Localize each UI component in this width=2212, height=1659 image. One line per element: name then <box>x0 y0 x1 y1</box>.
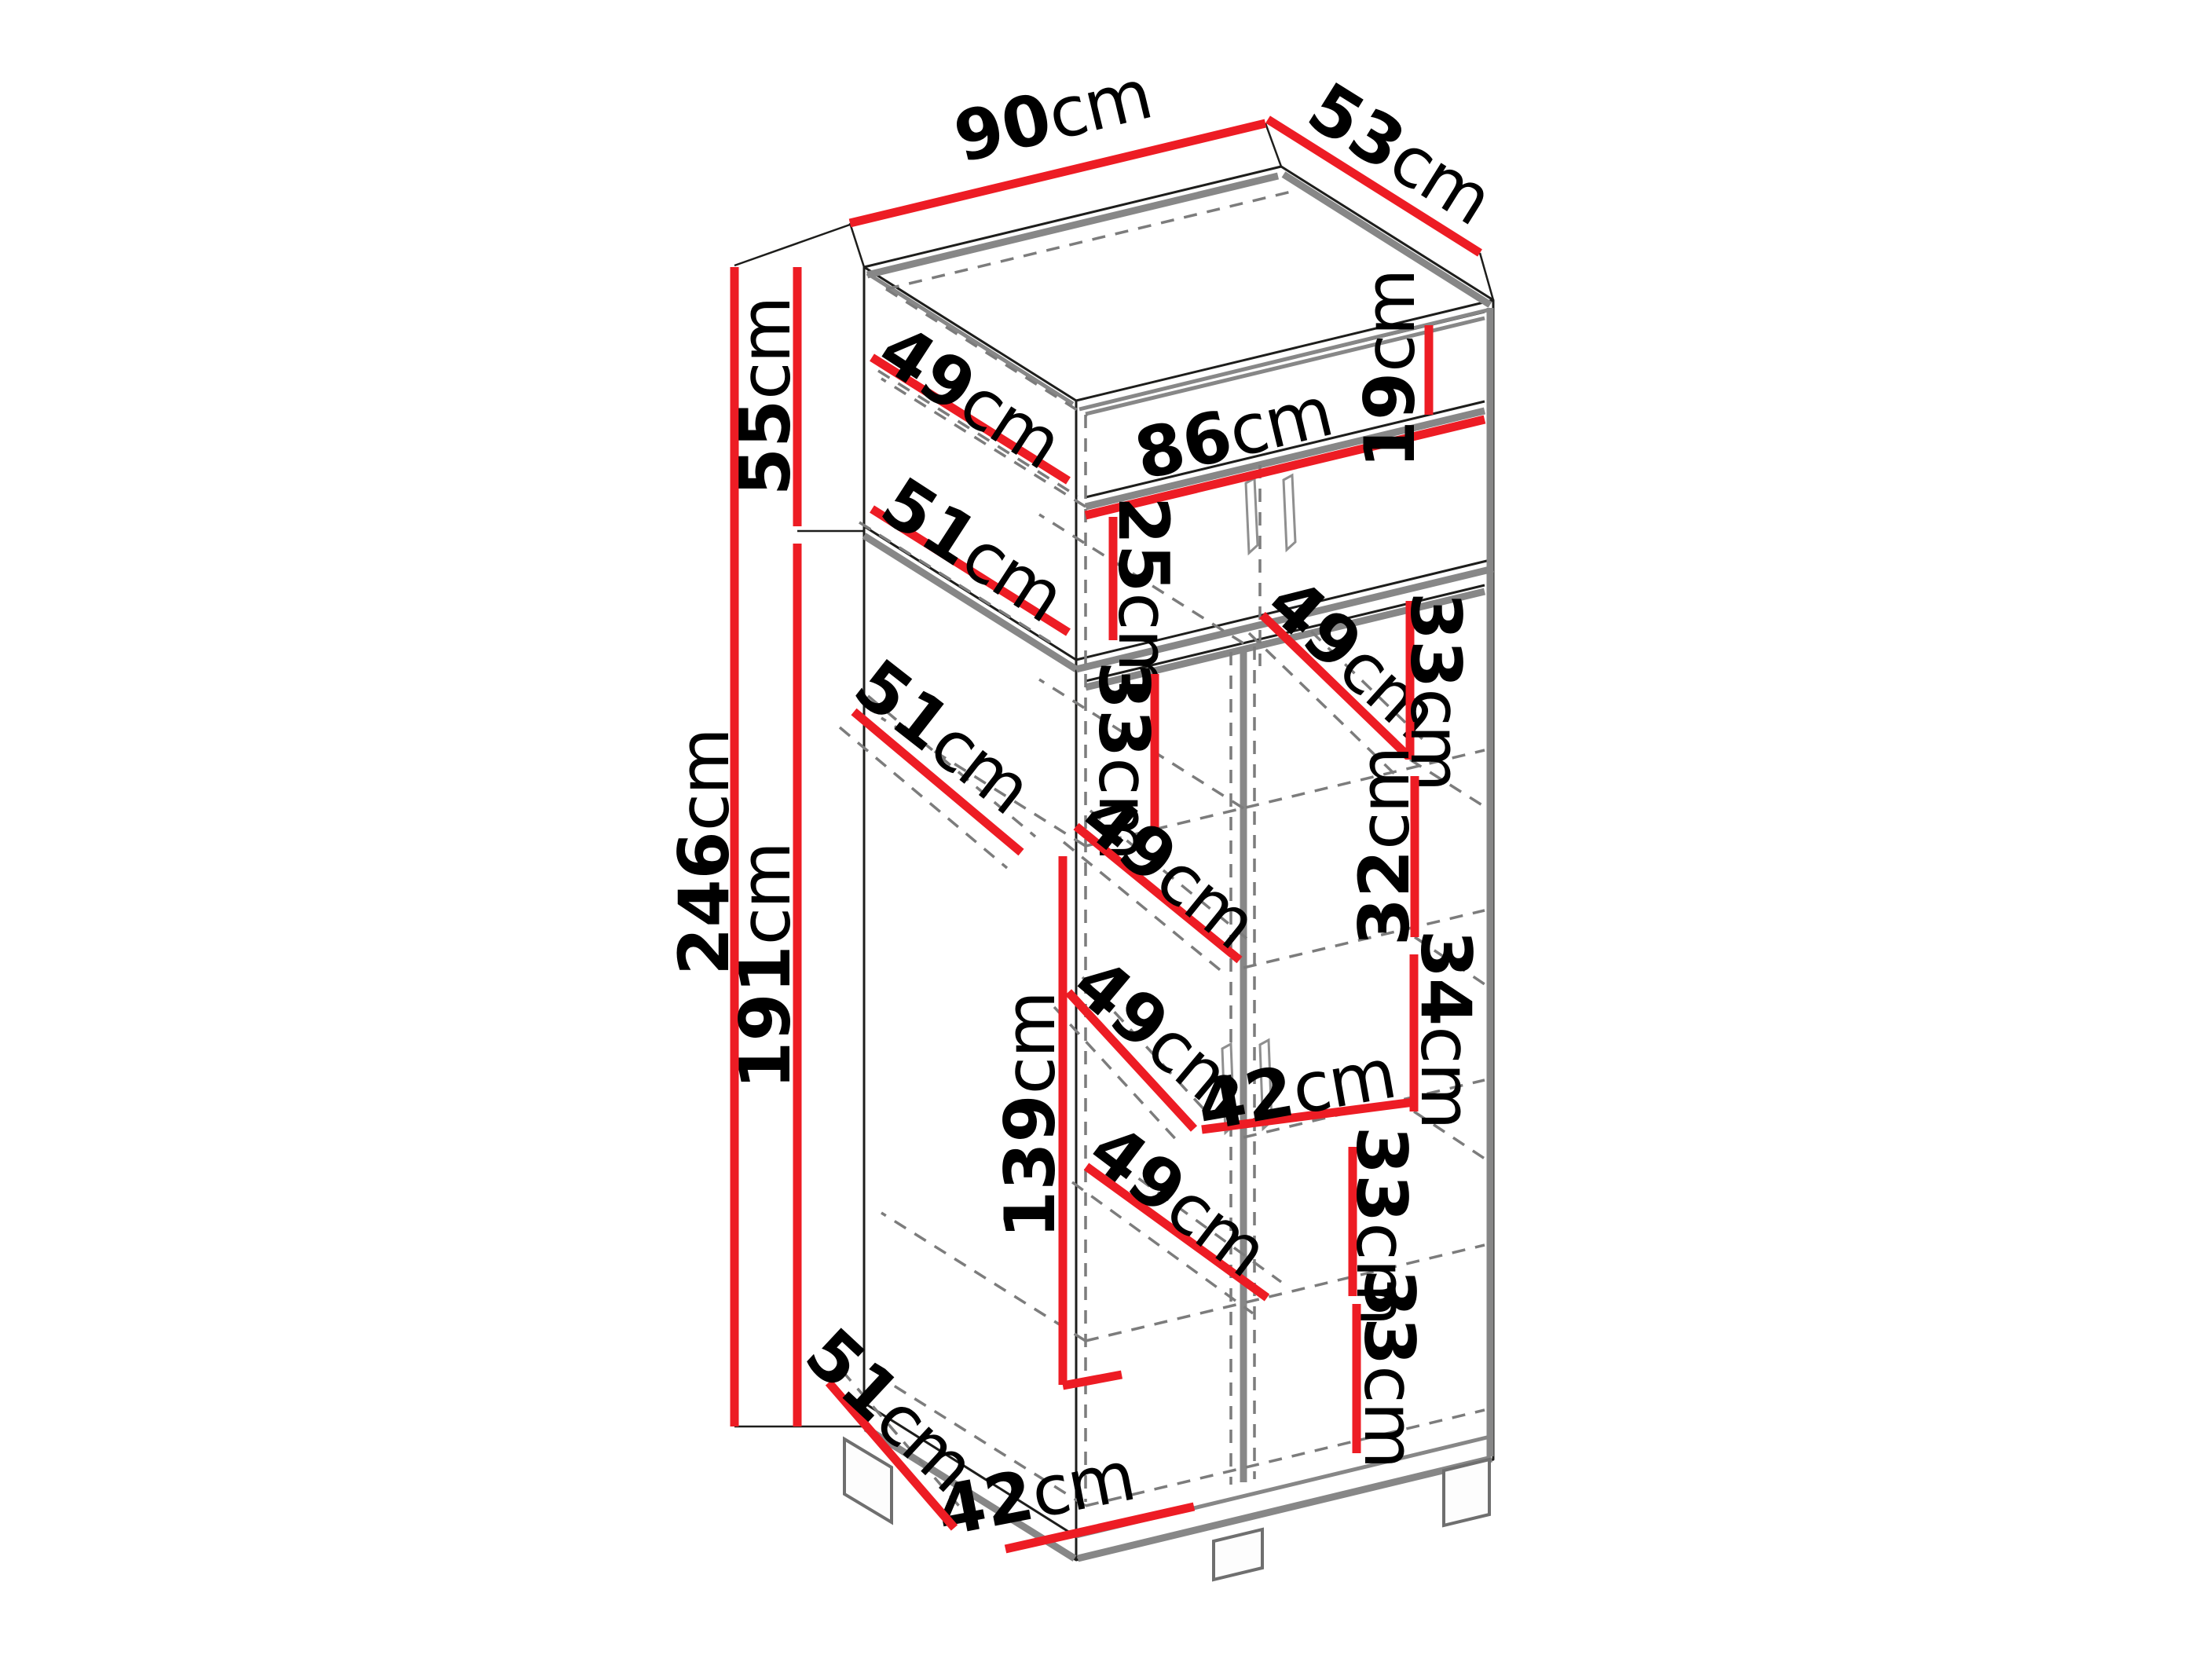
foot-right <box>1444 1459 1489 1525</box>
dim-33d-label: 33cm <box>1349 1269 1430 1468</box>
dim-19-label: 19cm <box>1350 270 1430 469</box>
upper-left-handle <box>1246 478 1258 553</box>
foot-center <box>1214 1529 1262 1580</box>
dim-compartment-height-34: 34cm <box>1405 930 1486 1129</box>
dim-55-label: 55cm <box>725 298 806 496</box>
wardrobe-dimension-diagram: 90cm 53cm 246cm 55cm 191cm 49cm 51cm <box>0 0 2212 1659</box>
dim-191-label: 191cm <box>725 843 806 1090</box>
dim-compartment-height-33-d: 33cm <box>1349 1269 1430 1468</box>
upper-right-handle <box>1284 475 1295 550</box>
dim-compartment-height-32: 32cm <box>1344 748 1425 947</box>
dim-32-label: 32cm <box>1344 748 1425 947</box>
dim-34-label: 34cm <box>1405 930 1486 1129</box>
dim-height-55: 55cm <box>725 267 806 526</box>
dim-niche-height-19: 19cm <box>1350 270 1430 469</box>
dim-139-label: 139cm <box>990 992 1071 1239</box>
diagram-page: 90cm 53cm 246cm 55cm 191cm 49cm 51cm <box>0 0 2212 1659</box>
